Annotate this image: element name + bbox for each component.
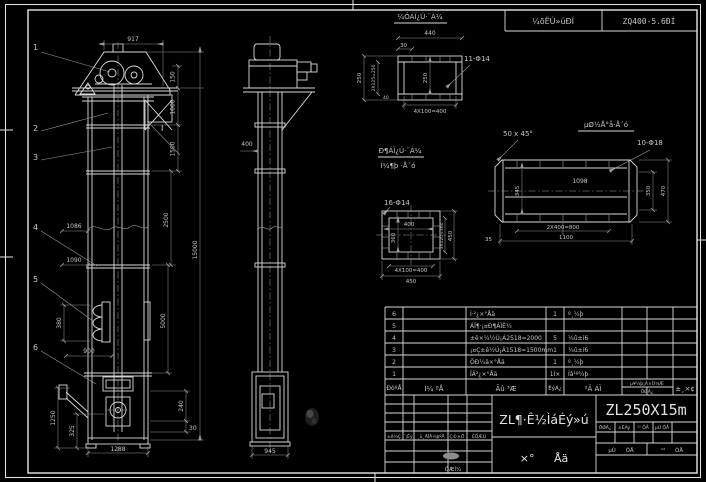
detail-inlet-dim-440: 440 (424, 30, 436, 37)
detail-inlet-dim-30: 30 (400, 43, 407, 49)
detail-inlet-flange: ¼ÓÁÏ¿Ú·¨À¼ 440 30 250 250 2X125=250 11-Φ… (357, 12, 490, 115)
svg-text:º¸¼þ: º¸¼þ (568, 311, 584, 318)
detail-base-plate: µØ½Å°å·Å´ó 50 x 45° 10-Φ18 345 1098 350 … (485, 120, 672, 245)
dim-1250: 1250 (50, 410, 57, 425)
svg-text:ÖÐ¼ä×°Åä: ÖÐ¼ä×°Åä (470, 359, 505, 366)
svg-text:1: 1 (553, 347, 557, 354)
revision-headers: ±ê¼Ç ´¦Êý ¸ü¸ÄÎÄ¼þºÅ Ç©×Ö ÈÕÆÚ (387, 432, 486, 440)
detail-base-holes: 10-Φ18 (637, 139, 663, 147)
product-title: ZL¶·Ê½ÌáÉý»ú (499, 412, 588, 427)
dim-150: 150 (170, 71, 177, 83)
detail-base-title: µØ½Å°å·Å´ó (584, 120, 628, 129)
detail-inlet-dim-pitch-h: 4X100=400 (414, 109, 447, 115)
svg-text:Ãû ³Æ: Ãû ³Æ (495, 384, 516, 393)
bom-row: 2 ÖÐ¼ä×°Åä 1 º¸¼þ (392, 359, 584, 366)
reducer-model: ZQ400-5.6ÐÍ (623, 15, 676, 26)
svg-text:ÐòºÅ: ÐòºÅ (386, 385, 402, 392)
svg-text:1Ì×: 1Ì× (550, 371, 561, 378)
reducer-strip: ¼õËÙ»úÐÍ ZQ400-5.6ÐÍ (505, 10, 697, 31)
detail-outlet-holes: 16-Φ14 (384, 199, 410, 207)
cad-drawing-sheet: ¼õËÙ»úÐÍ ZQ400-5.6ÐÍ I (0, 0, 706, 482)
detail-inlet-dim-height: 250 (357, 72, 363, 83)
detail-base-dim-35: 35 (485, 237, 492, 243)
balloon-labels: 1 2 3 4 5 6 (33, 43, 112, 384)
dim-30: 30 (189, 425, 197, 432)
svg-text:¼û±í6: ¼û±í6 (568, 335, 588, 342)
svg-text:Í·²¿×°Åä: Í·²¿×°Åä (470, 311, 495, 318)
detail-base-dim-1100: 1100 (559, 235, 573, 241)
svg-text:4: 4 (392, 335, 396, 342)
svg-text:3: 3 (392, 347, 396, 354)
drawing-number: ZL250X15m (605, 401, 686, 419)
svg-text:1: 1 (553, 359, 557, 366)
dim-5000: 5000 (160, 313, 167, 328)
dim-945: 945 (264, 448, 276, 455)
sheet-no-right: ¹² ÕÅ (661, 447, 683, 454)
svg-text:¸ü¸ÄÎÄ¼þºÅ: ¸ü¸ÄÎÄ¼þºÅ (417, 433, 445, 440)
svg-text:ÈÕÆÚ: ÈÕÆÚ (472, 432, 486, 440)
detail-outlet-title1: Ð¶ÁÏ¿Ú·¨À¼ (379, 146, 422, 155)
svg-text:¡¤Ç±ê½Ú¡Á1518=1500mm: ¡¤Ç±ê½Ú¡Á1518=1500mm (470, 347, 553, 354)
balloon-1: 1 (33, 43, 38, 52)
dim-15000: 15000 (192, 240, 199, 259)
title-block: ±ê¼Ç ´¦Êý ¸ü¸ÄÎÄ¼þºÅ Ç©×Ö ÈÕÆÚ ÖÆÍ¼ ZL¶·… (385, 395, 697, 473)
detail-inlet-holes: 11-Φ14 (464, 55, 490, 63)
detail-outlet-dim-pitch-h: 4X100=400 (395, 268, 428, 274)
bom-row: 3 ¡¤Ç±ê½Ú¡Á1518=1500mm 1 ¼û±í6 (392, 347, 588, 354)
dim-1288: 1288 (110, 446, 125, 453)
detail-inlet-dim-inner: 250 (423, 72, 429, 83)
svg-text:ÁÏ¶·¡¤Ð¶ÁÏÊ½: ÁÏ¶·¡¤Ð¶ÁÏÊ½ (470, 322, 512, 330)
dim-400: 400 (241, 141, 253, 148)
svg-text:´¦Êý: ´¦Êý (403, 432, 413, 440)
detail-base-dim-350: 350 (646, 185, 652, 196)
signature-label: ÖÆÍ¼ (445, 466, 462, 473)
balloon-6: 6 (33, 343, 38, 352)
detail-base-chamfer: 50 x 45° (503, 130, 533, 138)
svg-text:ÊýÁ¿: ÊýÁ¿ (548, 384, 561, 392)
svg-text:1: 1 (553, 311, 557, 318)
sheet-no-left: µÚ ÕÅ (608, 447, 634, 454)
dim-1086: 1086 (66, 223, 81, 230)
svg-text:±ê×¼½Ú¡Á2518=2000: ±ê×¼½Ú¡Á2518=2000 (470, 335, 542, 342)
dim-2500: 2500 (163, 212, 170, 227)
dim-325: 325 (69, 425, 76, 437)
balloon-5: 5 (33, 275, 38, 284)
bom-row: 5 ÁÏ¶·¡¤Ð¶ÁÏÊ½ (392, 322, 512, 330)
svg-text:²Ä ÁÏ: ²Ä ÁÏ (585, 384, 603, 393)
balloon-4: 4 (33, 223, 38, 232)
detail-base-dim-pitch: 2X400=800 (547, 225, 580, 231)
reducer-label: ¼õËÙ»úÐÍ (532, 15, 575, 26)
detail-outlet-dim-360: 360 (391, 232, 397, 243)
dim-240: 240 (178, 400, 185, 412)
dim-917: 917 (127, 36, 139, 43)
bom-row: 1 ÏÂ²¿×°Åä 1Ì× Íâ¹º¼þ (392, 371, 588, 378)
dim-1090: 1090 (66, 257, 81, 264)
front-view-dimensions: 917 150 1000 1500 2500 5000 15000 1086 1… (50, 36, 204, 457)
svg-text:µ¥¼þ¡Á×Ü¼Æ: µ¥¼þ¡Á×Ü¼Æ (630, 380, 664, 387)
svg-text:6: 6 (392, 311, 396, 318)
section-mark-label: I (161, 124, 163, 133)
dim-380: 380 (56, 317, 63, 329)
screen-artifacts (305, 408, 319, 426)
svg-text:1: 1 (392, 371, 396, 378)
svg-text:¹² ÕÅ: ¹² ÕÅ (637, 424, 650, 431)
svg-text:ÖØÁ¿: ÖØÁ¿ (599, 424, 612, 431)
svg-text:±ÈÀý: ±ÈÀý (618, 423, 630, 431)
detail-base-dim-345: 345 (515, 185, 521, 196)
bom-row: 4 ±ê×¼½Ú¡Á2518=2000 5 ¼û±í6 (392, 335, 588, 342)
detail-outlet-dim-400: 400 (404, 222, 415, 228)
svg-text:±ê¼Ç: ±ê¼Ç (387, 433, 401, 440)
detail-inlet-dim-40: 40 (383, 95, 389, 101)
svg-text:Ç©×Ö: Ç©×Ö (450, 433, 465, 440)
svg-text:±¸×¢: ±¸×¢ (675, 385, 695, 393)
dim-1500: 1500 (170, 141, 177, 156)
detail-base-dim-1098: 1098 (572, 178, 587, 185)
svg-text:ÖØÁ¿: ÖØÁ¿ (641, 388, 654, 395)
svg-text:5: 5 (392, 323, 396, 330)
front-view: I (59, 42, 180, 452)
assembly-label: ×° Åä (520, 452, 568, 465)
detail-inlet-dim-pitch-v: 2X125=250 (371, 64, 377, 91)
balloon-2: 2 (33, 124, 38, 133)
balloon-3: 3 (33, 153, 38, 162)
detail-outlet-title2: Í¼¶þ ·Å´ó (381, 161, 416, 170)
detail-inlet-title: ¼ÓÁÏ¿Ú·¨À¼ (397, 12, 442, 21)
svg-text:Í¼ ºÅ: Í¼ ºÅ (424, 384, 443, 393)
detail-outlet-dim-pitch-v: 3X120=360 (439, 222, 445, 249)
svg-text:µÚ ÕÅ: µÚ ÕÅ (655, 424, 670, 431)
svg-text:º¸¼þ: º¸¼þ (568, 359, 584, 366)
detail-outlet-dim-450b: 450 (406, 279, 417, 285)
bom-row: 6 Í·²¿×°Åä 1 º¸¼þ (392, 311, 584, 318)
detail-outlet-flange: Ð¶ÁÏ¿Ú·¨À¼ Í¼¶þ ·Å´ó 16-Φ14 400 360 3X12… (376, 146, 458, 285)
svg-text:ÏÂ²¿×°Åä: ÏÂ²¿×°Åä (470, 371, 498, 378)
bom-table: 6 Í·²¿×°Åä 1 º¸¼þ 5 ÁÏ¶·¡¤Ð¶ÁÏÊ½ 4 ±ê×¼½… (385, 307, 697, 473)
svg-text:Íâ¹º¼þ: Íâ¹º¼þ (568, 371, 588, 378)
dim-1000: 1000 (170, 99, 177, 114)
signature-mark (443, 453, 459, 460)
svg-text:¼û±í6: ¼û±í6 (568, 347, 588, 354)
detail-base-dim-470: 470 (661, 185, 667, 196)
svg-text:5: 5 (553, 335, 557, 342)
side-view: 400 945 (240, 36, 317, 459)
svg-text:2: 2 (392, 359, 396, 366)
dim-900: 900 (83, 348, 95, 355)
bom-header-row: ÐòºÅ Í¼ ºÅ Ãû ³Æ ÊýÁ¿ ²Ä ÁÏ µ¥¼þ¡Á×Ü¼Æ Ö… (386, 380, 694, 395)
detail-outlet-dim-450r: 450 (448, 230, 454, 241)
